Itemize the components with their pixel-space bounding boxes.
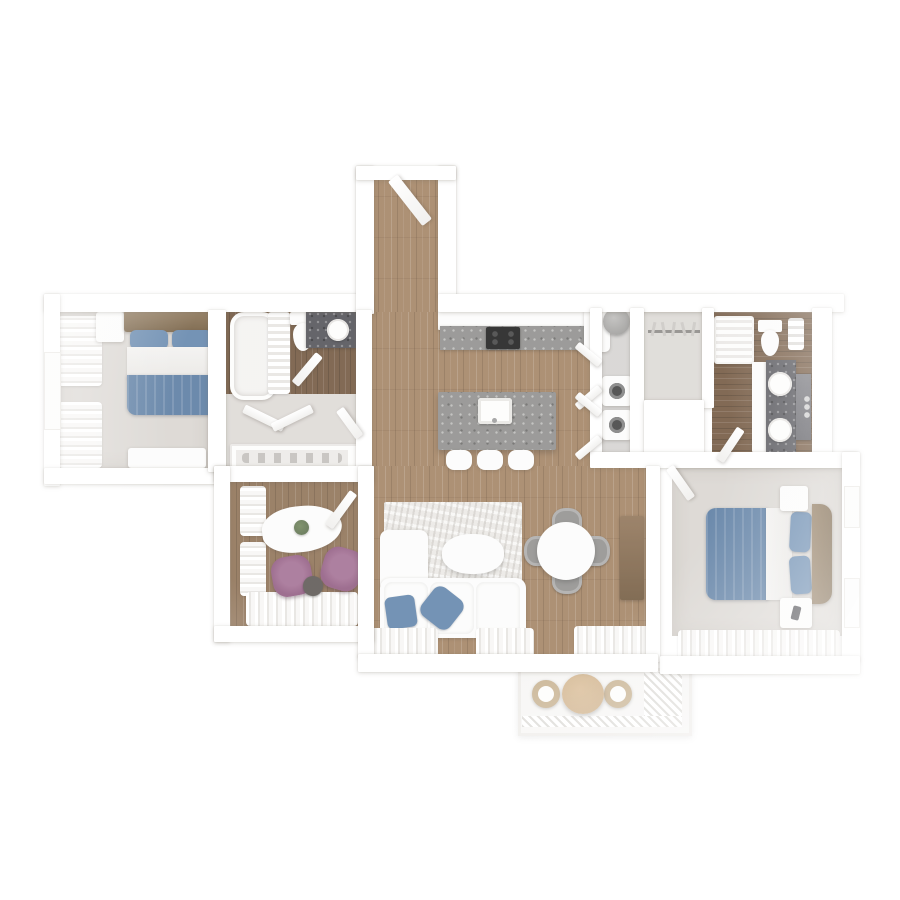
wall-den-north — [214, 466, 374, 482]
den-curtain-left-bottom — [240, 542, 266, 596]
wall-corridor-west-upper — [356, 166, 374, 314]
wall-den-south — [214, 626, 374, 642]
den-curtain-bottom — [246, 592, 358, 626]
bedroom2-curtain-bottom — [58, 402, 102, 468]
wall-corridor-west-lower — [356, 310, 372, 482]
dining-table — [537, 522, 595, 580]
wall-laundry-closet — [630, 308, 644, 456]
water-heater — [603, 308, 630, 335]
shoes-row — [242, 453, 342, 463]
balcony-railing-bottom — [522, 716, 682, 727]
sofa-pillow-left — [384, 594, 418, 630]
towel-rack — [788, 318, 804, 350]
nightstand-north — [780, 486, 808, 511]
wall-master-east — [842, 452, 860, 662]
towel-radiator — [268, 312, 290, 394]
sofa-cushion-3 — [476, 582, 520, 634]
washer-door — [609, 383, 625, 399]
master-pillow-bottom — [789, 555, 813, 594]
master-sheet — [766, 508, 792, 600]
corridor-lower-floor — [370, 312, 440, 472]
wall-laundry-west — [590, 308, 602, 456]
bedroom2-headboard — [124, 310, 216, 332]
bedroom2-window — [44, 352, 61, 430]
bedroom2-bench — [96, 312, 124, 342]
balcony-chair-right — [604, 680, 632, 708]
bar-stool-3 — [508, 450, 534, 470]
bedroom2-dresser — [128, 448, 206, 468]
bar-stool-2 — [477, 450, 503, 470]
wall-den-west — [214, 466, 230, 642]
master-headboard — [812, 504, 832, 604]
dryer-door — [609, 417, 625, 433]
wall-corridor-top — [356, 166, 456, 180]
den-plant — [294, 520, 309, 535]
media-console — [620, 516, 644, 600]
island-faucet — [492, 418, 497, 423]
wall-closet-ensuite — [702, 308, 714, 408]
coffee-table — [442, 534, 504, 574]
shower — [714, 316, 754, 364]
master-pillow-top — [789, 511, 812, 552]
wall-living-south — [358, 654, 658, 672]
bar-stool-1 — [446, 450, 472, 470]
master-window-2 — [844, 578, 860, 628]
balcony-table — [562, 674, 604, 714]
cooktop-burners — [490, 330, 516, 346]
wall-den-east — [358, 466, 374, 658]
wall-ensuite-east — [812, 308, 832, 456]
wall-corridor-east-upper — [438, 166, 456, 298]
floor-plan-render — [0, 0, 900, 900]
vanity-sink — [327, 319, 349, 341]
faucet-knobs — [804, 396, 810, 418]
wall-bedroom2-bottom — [44, 468, 226, 484]
ensuite-sink-2 — [768, 418, 792, 442]
ensuite-sink-1 — [768, 372, 792, 396]
den-side-table — [303, 576, 323, 596]
wall-master-south — [660, 656, 860, 674]
balcony-chair-left — [532, 680, 560, 708]
wall-master-west — [646, 466, 660, 662]
wall-closet-south — [644, 400, 704, 456]
master-duvet — [706, 508, 768, 600]
wall-bedroom2-bath — [208, 310, 226, 472]
master-window-1 — [844, 486, 860, 528]
bedroom2-duvet — [127, 375, 217, 415]
